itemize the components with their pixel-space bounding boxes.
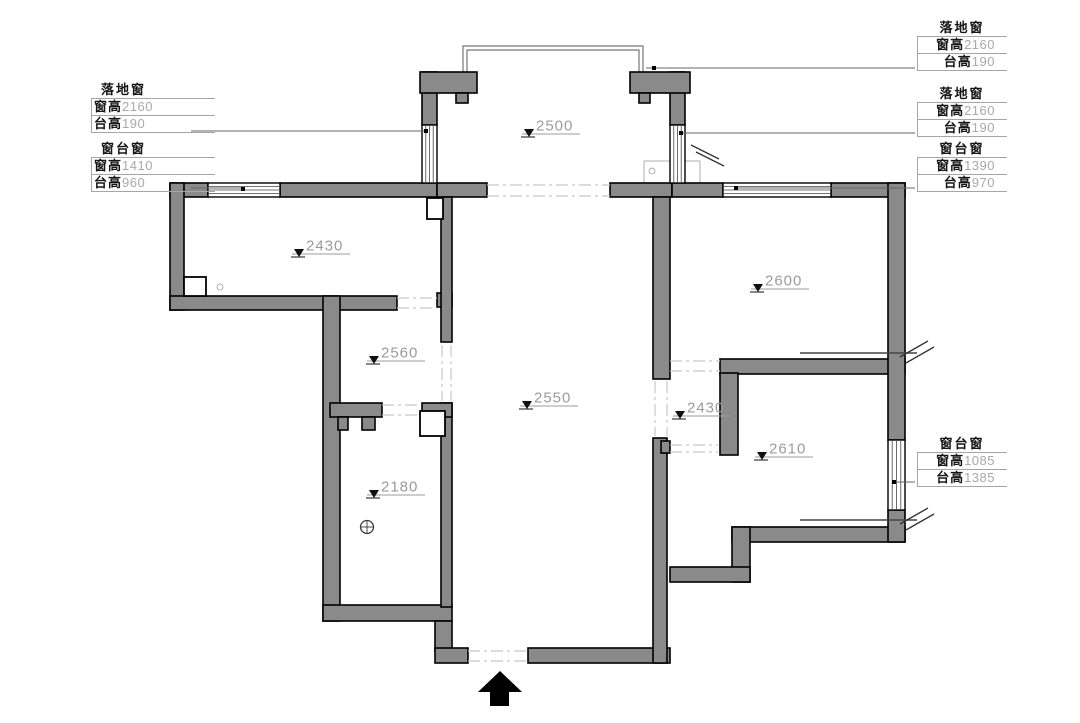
leader-dot bbox=[652, 66, 656, 70]
spec-row: 台高190 bbox=[918, 119, 1007, 137]
wall-segment bbox=[170, 183, 184, 310]
window-spec-title: 落地窗 bbox=[917, 86, 1007, 102]
window-spec-title: 窗台窗 bbox=[91, 141, 215, 157]
window-balcony-left bbox=[422, 125, 437, 183]
floor-drain-icon bbox=[361, 521, 374, 534]
window-bedroom-bottom bbox=[888, 440, 905, 510]
bay-window bbox=[463, 46, 643, 73]
window-spec-card: 窗台窗 窗高1390 台高970 bbox=[917, 141, 1007, 192]
wall-segment bbox=[435, 621, 452, 651]
wall-segment bbox=[888, 510, 905, 542]
window-spec-title: 落地窗 bbox=[917, 20, 1007, 36]
spec-row: 窗高1390 bbox=[918, 157, 1007, 174]
wall-segment bbox=[720, 359, 905, 374]
level-value: 2500 bbox=[536, 118, 573, 135]
leader-dot bbox=[424, 129, 428, 133]
ceiling-height-marker: 2550 bbox=[519, 390, 578, 410]
leader-dot bbox=[892, 480, 896, 484]
level-value: 2430 bbox=[306, 238, 343, 255]
spec-row: 窗高2160 bbox=[92, 98, 215, 115]
ceiling-height-marker: 2560 bbox=[366, 345, 425, 365]
wall-segment bbox=[610, 183, 672, 197]
small-circle-symbol bbox=[217, 284, 223, 290]
window-spec-card: 落地窗 窗高2160 台高190 bbox=[917, 20, 1007, 71]
wall-segment bbox=[170, 296, 397, 310]
wall-segment bbox=[661, 441, 670, 453]
walls bbox=[170, 72, 905, 663]
ceiling-height-marker: 2180 bbox=[366, 479, 425, 499]
wall-segment bbox=[639, 93, 650, 103]
wall-segment bbox=[630, 72, 690, 93]
spec-row: 窗高1085 bbox=[918, 452, 1007, 469]
window-spec-card: 落地窗 窗高2160 台高190 bbox=[917, 86, 1007, 137]
leader-dot bbox=[241, 187, 245, 191]
level-value: 2560 bbox=[381, 345, 418, 362]
window-spec-card: 窗台窗 窗高1410 台高960 bbox=[91, 141, 215, 192]
wall-segment bbox=[280, 183, 437, 197]
ceiling-height-marker: 2430 bbox=[672, 400, 731, 420]
window-spec-card: 窗台窗 窗高1085 台高1385 bbox=[917, 436, 1007, 487]
level-value: 2180 bbox=[381, 479, 418, 496]
window-spec-title: 落地窗 bbox=[91, 82, 215, 98]
column bbox=[420, 411, 445, 436]
wall-segment bbox=[456, 93, 468, 103]
spec-row: 窗高2160 bbox=[918, 102, 1007, 119]
wall-segment bbox=[435, 648, 468, 663]
columns bbox=[184, 198, 445, 436]
level-value: 2550 bbox=[534, 390, 571, 407]
spec-row: 台高960 bbox=[92, 174, 215, 192]
wall-segment bbox=[653, 438, 667, 663]
ceiling-height-marker: 2600 bbox=[750, 273, 809, 293]
spec-row: 台高1385 bbox=[918, 469, 1007, 487]
wall-segment bbox=[362, 417, 375, 430]
wall-segment bbox=[420, 72, 477, 93]
wall-segment bbox=[888, 183, 905, 440]
floor-plan-canvas: 2500 2430 2560 2180 2550 2600 bbox=[0, 0, 1080, 723]
wall-segment bbox=[338, 417, 348, 430]
column bbox=[184, 277, 206, 296]
level-value: 2430 bbox=[687, 400, 724, 417]
spec-row: 台高190 bbox=[92, 115, 215, 133]
ceiling-height-marker: 2500 bbox=[521, 118, 580, 138]
wall-segment bbox=[653, 197, 670, 379]
wall-segment bbox=[437, 183, 487, 197]
window-bedroom-top bbox=[723, 183, 831, 197]
level-value: 2610 bbox=[769, 441, 806, 458]
spec-row: 台高190 bbox=[918, 53, 1007, 71]
wall-segment bbox=[323, 605, 452, 621]
ceiling-height-marker: 2430 bbox=[291, 238, 350, 258]
wall-niche bbox=[427, 198, 443, 219]
wall-segment bbox=[670, 567, 750, 582]
entry-arrow-icon bbox=[478, 671, 522, 706]
window-spec-title: 窗台窗 bbox=[917, 436, 1007, 452]
wall-segment bbox=[323, 296, 340, 621]
spec-row: 窗高2160 bbox=[918, 36, 1007, 53]
wall-segment bbox=[672, 183, 723, 197]
leader-dot bbox=[734, 186, 738, 190]
shaft-circle bbox=[649, 168, 655, 174]
spec-row: 台高970 bbox=[918, 174, 1007, 192]
wall-segment bbox=[732, 527, 905, 542]
level-value: 2600 bbox=[765, 273, 802, 290]
wall-segment bbox=[330, 403, 382, 417]
window-spec-card: 落地窗 窗高2160 台高190 bbox=[91, 82, 215, 133]
window-spec-title: 窗台窗 bbox=[917, 141, 1007, 157]
leader-dot bbox=[679, 131, 683, 135]
wall-segment bbox=[528, 648, 670, 663]
spec-row: 窗高1410 bbox=[92, 157, 215, 174]
ceiling-height-marker: 2610 bbox=[754, 441, 813, 461]
